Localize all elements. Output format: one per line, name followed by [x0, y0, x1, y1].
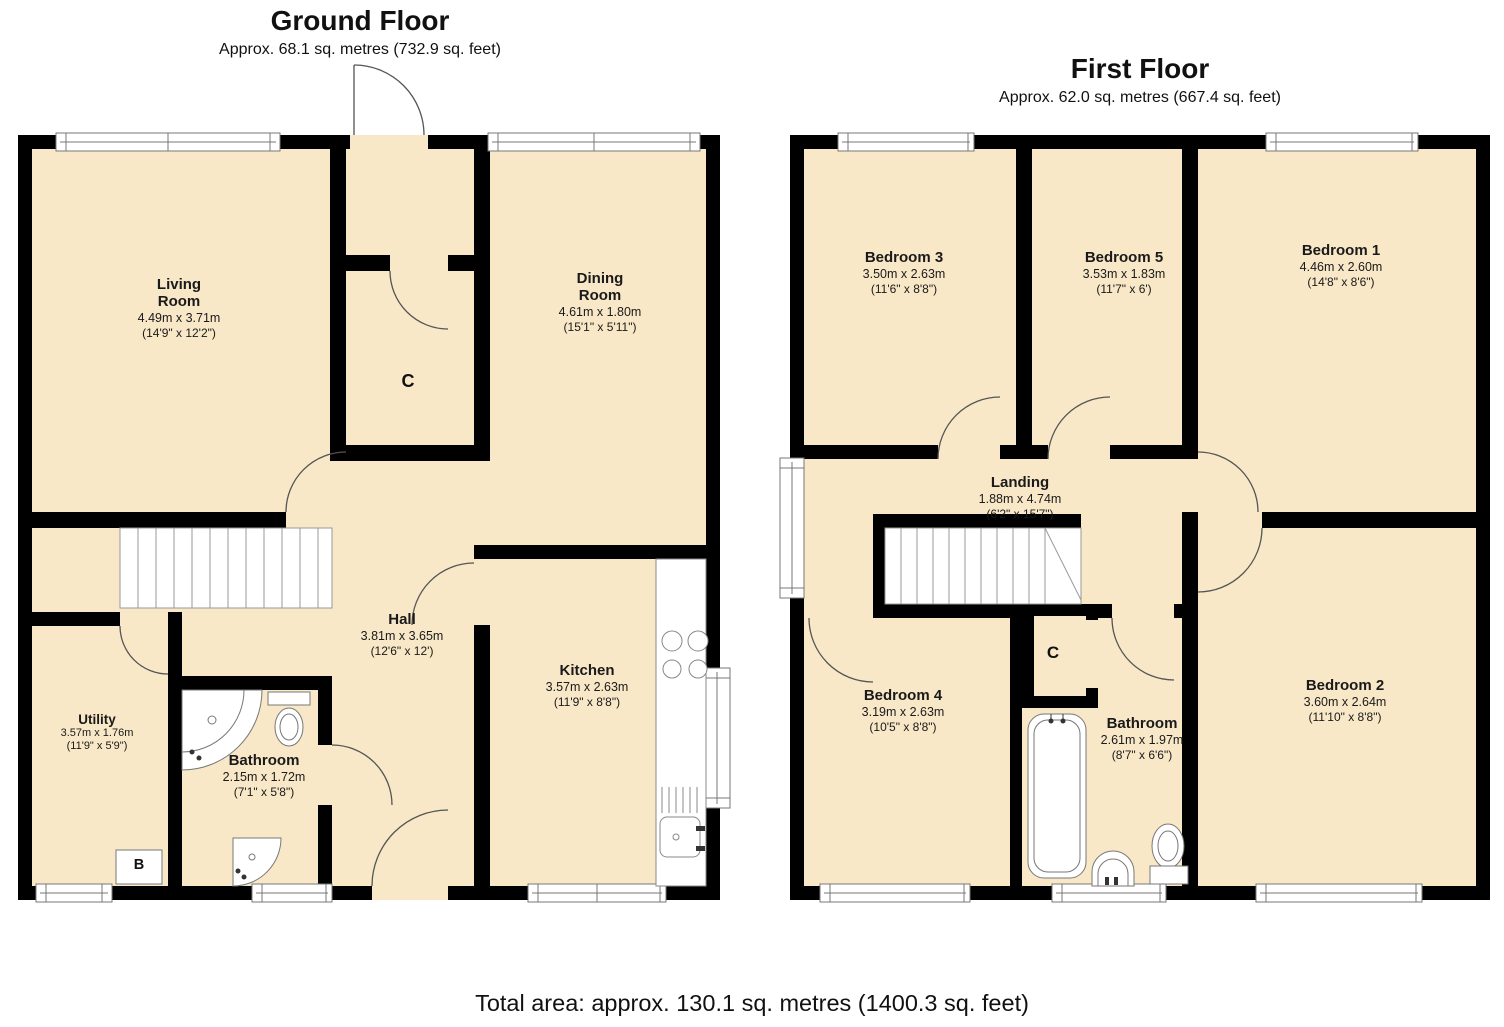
kitchen-counter	[656, 559, 708, 886]
first-floor-header: First Floor Approx. 62.0 sq. metres (667…	[999, 54, 1281, 107]
room-label-utility: Utility 3.57m x 1.76m (11'9" x 5'9")	[61, 712, 134, 753]
room-label-landing: Landing 1.88m x 4.74m (6'2" x 15'7")	[979, 475, 1062, 521]
total-area-label: Total area: approx. 130.1 sq. metres (14…	[475, 990, 1029, 1017]
room-label-first-bathroom: Bathroom 2.61m x 1.97m (8'7" x 6'6")	[1101, 716, 1184, 762]
floorplan-canvas: Ground Floor Approx. 68.1 sq. metres (73…	[0, 0, 1504, 1027]
room-label-hall: Hall 3.81m x 3.65m (12'6" x 12')	[361, 612, 444, 658]
back-door-opening	[372, 886, 448, 900]
room-label-bedroom-3: Bedroom 3 3.50m x 2.63m (11'6" x 8'8")	[863, 250, 946, 296]
cupboard-label-first: C	[1047, 643, 1059, 663]
first-stairs-icon	[885, 528, 1081, 604]
front-door-opening	[350, 135, 428, 149]
ground-floor-plan	[18, 65, 730, 902]
room-label-dining-room: Dining Room 4.61m x 1.80m (15'1" x 5'11"…	[557, 271, 643, 334]
cupboard-label-ground: C	[402, 371, 415, 392]
ground-floor-area: Approx. 68.1 sq. metres (732.9 sq. feet)	[219, 41, 501, 59]
ground-stairs-icon	[120, 528, 332, 608]
kitchen-sink-icon	[660, 817, 705, 857]
ground-floor-title: Ground Floor	[219, 6, 501, 37]
room-label-bedroom-5: Bedroom 5 3.53m x 1.83m (11'7" x 6')	[1083, 250, 1166, 296]
first-floor-title: First Floor	[999, 54, 1281, 85]
room-label-kitchen: Kitchen 3.57m x 2.63m (11'9" x 8'8")	[546, 663, 629, 709]
room-label-ground-bathroom: Bathroom 2.15m x 1.72m (7'1" x 5'8")	[223, 753, 306, 799]
ground-floor-header: Ground Floor Approx. 68.1 sq. metres (73…	[219, 6, 501, 59]
floorplan-drawing	[0, 0, 1504, 1027]
bath-icon	[1028, 714, 1086, 878]
room-label-bedroom-1: Bedroom 1 4.46m x 2.60m (14'8" x 8'6")	[1300, 243, 1383, 289]
first-floor-area: Approx. 62.0 sq. metres (667.4 sq. feet)	[999, 89, 1281, 107]
room-label-bedroom-4: Bedroom 4 3.19m x 2.63m (10'5" x 8'8")	[862, 688, 945, 734]
boiler-label: B	[134, 857, 144, 873]
room-label-bedroom-2: Bedroom 2 3.60m x 2.64m (11'10" x 8'8")	[1304, 678, 1387, 724]
room-label-living-room: Living Room 4.49m x 3.71m (14'9" x 12'2"…	[136, 277, 222, 340]
